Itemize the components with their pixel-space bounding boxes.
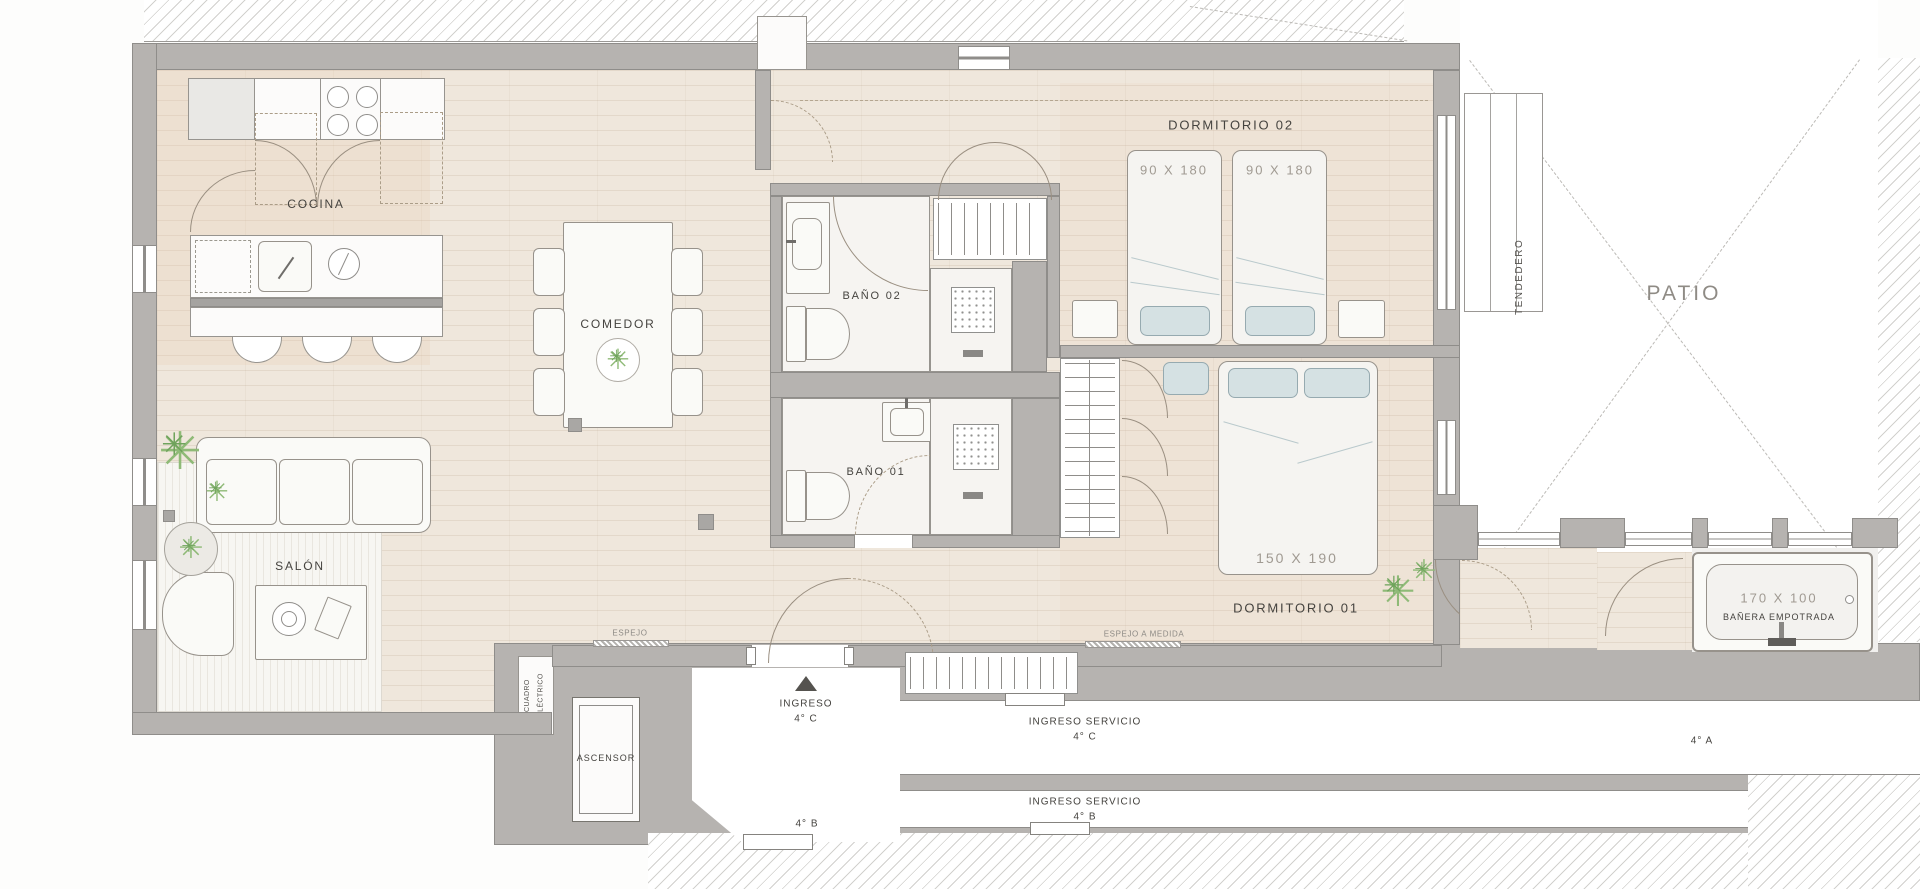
label-servicio-b-2: 4° B — [1073, 812, 1096, 823]
fridge — [188, 78, 255, 140]
burner-4 — [356, 114, 378, 136]
upper-cabinet-dashed-2 — [380, 112, 443, 204]
burner-3 — [327, 114, 349, 136]
drying-rack — [1464, 93, 1543, 312]
glazing-3 — [1708, 532, 1772, 546]
wall-bath-bottom-1 — [770, 535, 855, 548]
tub-drain — [1845, 595, 1854, 604]
dim-bed-double: 150 X 190 — [1256, 550, 1338, 566]
label-servicio-c-1: INGRESO SERVICIO — [1029, 717, 1142, 728]
pillar-3 — [1692, 518, 1708, 548]
bath02-basin — [792, 218, 822, 270]
plant-icon — [606, 346, 629, 374]
label-espejo-medida: ESPEJO A MEDIDA — [1104, 630, 1185, 639]
plant-icon — [1411, 557, 1436, 587]
wall-bath-col-b — [1012, 261, 1047, 372]
plant-icon — [178, 534, 203, 564]
bath02-toilet-bowl — [806, 308, 850, 360]
glazing-1 — [1478, 532, 1560, 546]
plant-icon — [1380, 571, 1415, 613]
shower02-tray — [951, 287, 995, 333]
dining-chair-l1 — [533, 248, 565, 296]
hatch-right-strip — [1878, 58, 1920, 642]
bath01-toilet-tank — [786, 470, 806, 522]
label-cocina: COCINA — [287, 197, 344, 211]
wall-bath-mid — [770, 372, 1060, 398]
pillar-4 — [1772, 518, 1788, 548]
mirror-espejo-medida — [1085, 641, 1181, 648]
floor-outlet-2 — [568, 418, 582, 432]
pillar-2 — [1560, 518, 1625, 548]
window-left-upper — [132, 245, 157, 293]
label-apt-b: 4° B — [795, 819, 818, 830]
plant-icon — [205, 478, 228, 506]
floor-outlet-1 — [163, 510, 175, 522]
label-salon: SALÓN — [275, 559, 325, 573]
armchair — [162, 572, 234, 656]
label-servicio-c-2: 4° C — [1073, 732, 1097, 743]
glazing-4 — [1788, 532, 1852, 546]
shower02-drain — [963, 350, 983, 357]
wall-dorm-divider — [1060, 345, 1460, 358]
corridor-4b — [757, 790, 1748, 828]
wall-bath-col-c — [1012, 398, 1060, 548]
bed-right-pillow — [1245, 306, 1315, 336]
window-left-lower — [132, 458, 157, 506]
label-comedor: COMEDOR — [580, 317, 655, 331]
terrace-door-left — [132, 560, 157, 630]
dishwasher-dashed — [195, 240, 251, 293]
shower01-tray — [953, 424, 999, 470]
label-espejo: ESPEJO — [612, 629, 647, 638]
dining-chair-r1 — [671, 248, 703, 296]
window-dorm01-right — [1437, 420, 1456, 495]
bath02-toilet-tank — [786, 306, 806, 362]
label-bano02: BAÑO 02 — [842, 290, 901, 302]
dining-chair-l3 — [533, 368, 565, 416]
label-tub: BAÑERA EMPOTRADA — [1723, 612, 1835, 622]
floor-outlet-3 — [698, 514, 714, 530]
service-window-top — [958, 46, 1010, 70]
wardrobe-dorm02 — [933, 198, 1047, 260]
coffee-table-tray-inner — [281, 611, 297, 627]
roof-duct-box — [757, 16, 807, 70]
wardrobe-dorm01-rail — [1089, 360, 1090, 536]
bath01-toilet-bowl — [806, 472, 850, 520]
label-ingreso-1: INGRESO — [779, 699, 832, 710]
wardrobe-dorm01 — [1060, 358, 1120, 538]
tub-faucet — [1768, 638, 1796, 646]
entry-door-jamb-left — [746, 647, 756, 665]
floor-plan: ASCENSOR CUADRO ELÉCTRICO COCINA — [0, 0, 1920, 889]
vestibule — [692, 668, 900, 842]
bath02-faucet — [786, 240, 796, 243]
label-patio: PATIO — [1647, 282, 1722, 306]
dining-chair-r3 — [671, 368, 703, 416]
door-4b — [743, 834, 813, 850]
window-dorm02-right — [1437, 115, 1456, 310]
nightstand-dorm02-right — [1338, 300, 1385, 338]
label-tendedero: TENDEDERO — [1514, 135, 1525, 315]
dining-chair-l2 — [533, 308, 565, 356]
glazing-2 — [1625, 532, 1692, 546]
label-apt-a: 4° A — [1691, 736, 1713, 747]
pouf-dorm01 — [1163, 362, 1209, 395]
wall-bottom-salon — [132, 712, 552, 735]
counter-edge-band — [190, 298, 443, 307]
bed-double-pillow-left — [1228, 368, 1298, 398]
nightstand-dorm02-left — [1072, 300, 1118, 338]
service-door-4b — [1030, 822, 1090, 835]
pillar-1 — [1433, 505, 1478, 560]
wall-bottom-hall-left — [552, 645, 752, 667]
burner-2 — [356, 86, 378, 108]
mirror-espejo — [593, 640, 669, 647]
wall-hall-stub — [755, 70, 771, 170]
label-dormitorio01: DORMITORIO 01 — [1233, 601, 1359, 616]
entry-arrow-icon — [795, 676, 817, 691]
service-door-4c — [1005, 693, 1065, 706]
dim-tub: 170 X 100 — [1740, 591, 1817, 606]
bed-double-pillow-right — [1304, 368, 1370, 398]
sofa-cushion-2 — [279, 459, 350, 525]
counter-divider-1 — [320, 78, 321, 140]
corridor-wardrobe — [905, 652, 1078, 694]
dim-bed-left: 90 X 180 — [1140, 163, 1208, 178]
bed-left-pillow — [1140, 306, 1210, 336]
dining-chair-r2 — [671, 308, 703, 356]
wall-left — [132, 43, 157, 735]
bath01-faucet — [905, 398, 908, 408]
window-band-dashed — [800, 100, 1428, 101]
plant-icon — [158, 426, 202, 478]
corridor-4c — [757, 700, 1920, 775]
bath01-basin — [890, 408, 924, 436]
label-servicio-b-1: INGRESO SERVICIO — [1029, 797, 1142, 808]
pillar-5 — [1852, 518, 1898, 548]
sofa-cushion-3 — [352, 459, 423, 525]
label-ingreso-2: 4° C — [794, 714, 818, 725]
wall-bath-col-a — [1047, 196, 1060, 358]
wall-bath-bottom-2 — [912, 535, 1060, 548]
bath01-door-gap — [855, 535, 912, 548]
dim-bed-right: 90 X 180 — [1246, 163, 1314, 178]
label-ascensor: ASCENSOR — [577, 753, 636, 763]
kitchen-bar — [190, 307, 443, 337]
hatch-bottom-right — [1748, 772, 1920, 889]
label-dormitorio02: DORMITORIO 02 — [1168, 118, 1294, 133]
burner-1 — [327, 86, 349, 108]
shower01-drain — [963, 492, 983, 499]
